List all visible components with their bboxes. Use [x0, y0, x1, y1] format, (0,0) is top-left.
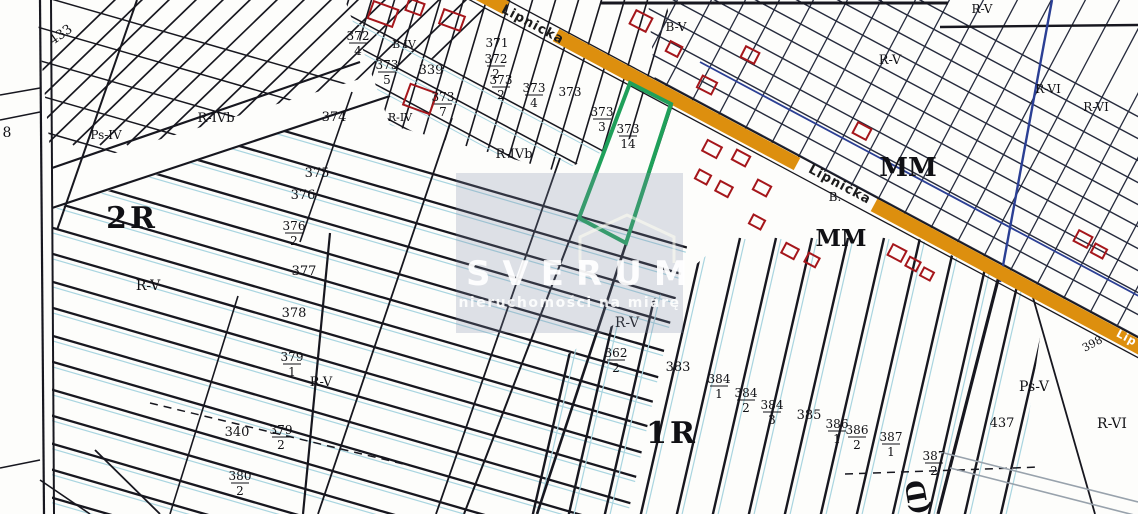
fraction-denominator: 5 [383, 73, 391, 87]
soil-class-label: R-VI [1035, 82, 1061, 96]
zone-label: MM [879, 153, 937, 183]
fraction-numerator: 384 [735, 386, 758, 400]
fraction-denominator: 1 [833, 432, 841, 446]
fraction-numerator: 372 [347, 29, 370, 43]
zone-label: 1R [646, 416, 698, 451]
fraction-denominator: 2 [742, 401, 750, 415]
fraction-denominator: 4 [530, 96, 538, 110]
zone-label: MM [816, 225, 867, 252]
fraction-numerator: 362 [605, 346, 628, 360]
fraction-numerator: 376 [283, 219, 306, 233]
soil-class-label: R-V [972, 2, 993, 16]
parcel-number: 385 [797, 408, 822, 423]
fraction-numerator: 379 [281, 350, 304, 364]
soil-class-label: R-V [310, 375, 333, 390]
fraction-denominator: 2 [277, 438, 285, 452]
parcel-number: 437 [990, 416, 1015, 431]
fraction-denominator: 3 [598, 120, 606, 134]
fraction-denominator: 2 [612, 361, 620, 375]
fraction-denominator: 1 [715, 387, 723, 401]
watermark-tagline: nieruchomości na miarę [456, 295, 683, 311]
soil-class-label: Ps-IV [90, 128, 122, 142]
soil-class-label: Ps-V [1019, 379, 1050, 395]
parcel-number: 376 [291, 188, 316, 203]
fraction-numerator: 387 [923, 449, 946, 463]
fraction-numerator: 379 [270, 423, 293, 437]
soil-class-label: B IV [392, 38, 417, 51]
zone-label: (D [900, 478, 936, 514]
fraction-denominator: 4 [354, 44, 362, 58]
soil-class-label: R-V [879, 53, 902, 68]
fraction-denominator: 7 [439, 105, 447, 119]
fraction-denominator: 2 [853, 438, 861, 452]
fraction-numerator: 373 [617, 122, 640, 136]
fraction-numerator: 373 [376, 58, 399, 72]
soil-class-label: B-V [666, 20, 687, 34]
fraction-numerator: 373 [523, 81, 546, 95]
soil-class-label: R-IVb [495, 147, 532, 162]
soil-class-label: R-VI [1097, 416, 1127, 432]
zone-label: 2R [106, 201, 158, 236]
parcel-number: 339 [419, 63, 444, 78]
parcel-number: 8 [3, 125, 12, 141]
watermark-brand: SVERUM [456, 257, 683, 291]
fraction-denominator: 1 [288, 365, 296, 379]
fraction-numerator: 384 [708, 372, 731, 386]
fraction-numerator: 380 [229, 469, 252, 483]
parcel-number: 373 [559, 85, 582, 99]
soil-class-label: R-IV [388, 111, 413, 124]
fraction-numerator: 373 [591, 105, 614, 119]
fraction-numerator: 384 [761, 398, 784, 412]
fraction-denominator: 1 [887, 445, 895, 459]
soil-class-label: R-V [136, 278, 161, 294]
soil-class-label: R-VI [1083, 100, 1109, 114]
fraction-numerator: 373 [490, 73, 513, 87]
fraction-numerator: 372 [485, 52, 508, 66]
fraction-denominator: 2 [930, 464, 938, 478]
fraction-denominator: 2 [497, 88, 505, 102]
parcel-number: 375 [305, 166, 330, 181]
soil-class-label: R-IVb [197, 111, 234, 126]
fraction-denominator: 2 [290, 234, 298, 248]
parcel-number: 377 [292, 264, 317, 279]
parcel-number: 371 [486, 36, 509, 50]
fraction-numerator: 386 [846, 423, 869, 437]
parcel-number: 383 [666, 360, 691, 375]
watermark: SVERUM nieruchomości na miarę [456, 173, 683, 333]
fraction-numerator: 387 [880, 430, 903, 444]
fraction-numerator: 373 [432, 90, 455, 104]
parcel-number: 374 [322, 110, 347, 125]
parcel-number: 340 [225, 425, 250, 440]
fraction-denominator: 14 [620, 137, 636, 151]
fraction-denominator: 2 [236, 484, 244, 498]
fraction-denominator: 3 [768, 413, 776, 427]
cadastral-map-image: 2R1RMMMM(DR-IVbPs-IVR-IVbR-IVB IVR-VR-VR… [0, 0, 1138, 514]
parcel-number: 378 [282, 306, 307, 321]
